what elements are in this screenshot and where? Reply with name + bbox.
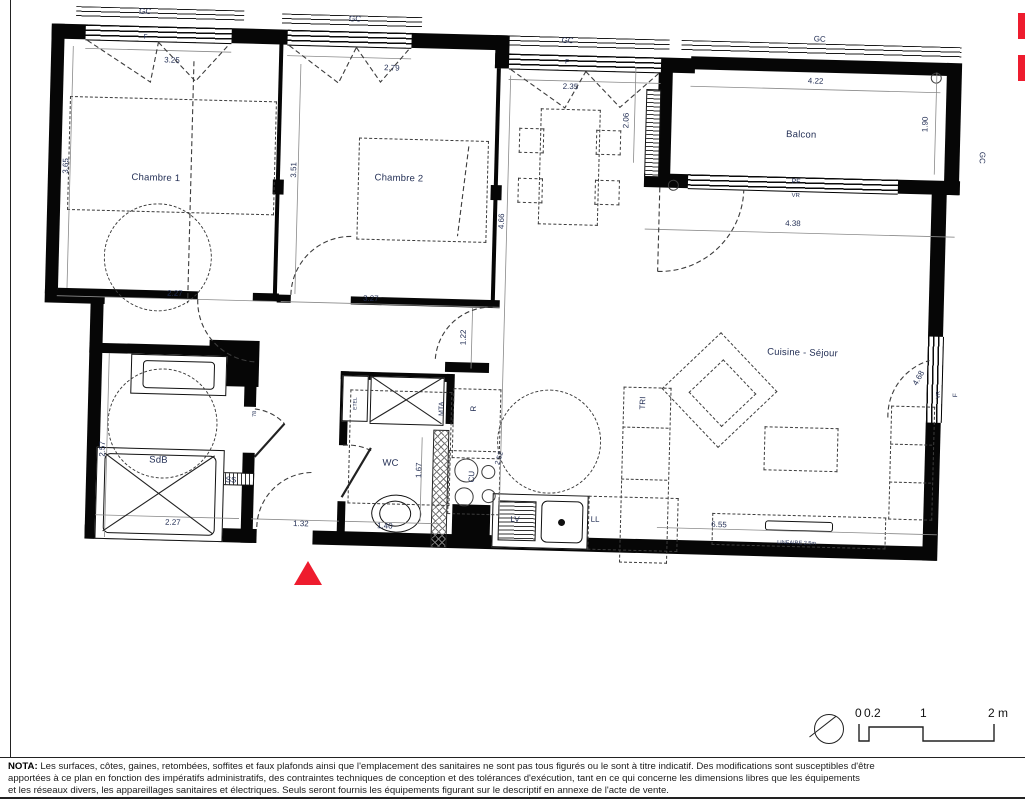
plan-label-vr: VR xyxy=(791,193,799,199)
plan-label-1-32: 1.32 xyxy=(293,520,309,528)
nota-line1: NOTA: Les surfaces, côtes, gaines, retom… xyxy=(8,761,1013,773)
plan-label-f: F xyxy=(565,60,569,67)
plan-label-3-51: 3.51 xyxy=(290,162,298,178)
plan-label-cuisine-s-jour: Cuisine - Séjour xyxy=(767,348,838,359)
plan-label-tri: TRI xyxy=(639,397,647,410)
nota-top-rule xyxy=(0,757,1025,758)
plan-label-2-35: 2.35 xyxy=(563,83,579,91)
plan-label-78: 78 xyxy=(253,411,259,417)
plan-label-chambre-2: Chambre 2 xyxy=(374,173,423,184)
red-tab-bottom xyxy=(1018,55,1025,81)
nota-block: NOTA: Les surfaces, côtes, gaines, retom… xyxy=(8,761,1013,798)
plan-label-lineaire-2-5m: LINEAIRE 2.5m xyxy=(777,541,816,548)
scale-bar: 0 0.2 1 2 m xyxy=(852,706,1017,750)
plan-label-sdb: SdB xyxy=(149,455,168,465)
plan-label-1-40: 1.40 xyxy=(377,522,393,530)
red-tab-top xyxy=(1018,13,1025,39)
entry-marker-triangle xyxy=(294,561,322,585)
plan-label-gc: GC xyxy=(139,8,151,16)
plan-label-f: F xyxy=(143,35,147,42)
plan-label-lv: LV xyxy=(510,516,519,524)
plan-label-balcon: Balcon xyxy=(786,130,816,140)
plan-label-f: F xyxy=(953,393,960,397)
scale-tick-02: 0.2 xyxy=(864,706,881,720)
plan-label-4-22: 4.22 xyxy=(808,77,824,85)
plan-label-ll: LL xyxy=(591,516,600,524)
scale-tick-2m: 2 m xyxy=(988,706,1008,720)
nota-line1-text: Les surfaces, côtes, gaines, retombées, … xyxy=(38,761,875,772)
plan-label-1-90: 1.90 xyxy=(921,116,929,132)
plan-label-cu: CU xyxy=(468,471,476,483)
plan-label-gc: GC xyxy=(978,152,986,164)
plan-label-vr: VR xyxy=(937,391,943,399)
plan-label-2-06: 2.06 xyxy=(622,113,630,129)
nota-line2: apportées à ce plan en fonction des impé… xyxy=(8,773,1013,785)
plan-linework xyxy=(38,0,977,572)
plan-label-gc: GC xyxy=(562,37,574,45)
plan-label-2-57: 2.57 xyxy=(99,441,107,457)
north-symbol xyxy=(810,712,842,744)
floor-plan: GCGCGCGCGCFF3.252.792.354.221.902.06Balc… xyxy=(38,0,977,572)
nota-title: NOTA: xyxy=(8,761,38,772)
floorplan-page: { "colors": { "accent_red": "#ee1c2e", "… xyxy=(0,0,1025,800)
plan-label-3-27: 3.27 xyxy=(363,295,379,303)
plan-label-gc: GC xyxy=(349,15,361,23)
plan-label-3-65: 3.65 xyxy=(62,158,70,174)
plan-label-3-25: 3.25 xyxy=(164,56,180,64)
plan-label-wc: WC xyxy=(382,459,398,469)
nota-line3: et les réseaux divers, les appareillages… xyxy=(8,785,1013,797)
plan-label-gc: GC xyxy=(814,35,826,43)
plan-label-mta: MTA xyxy=(438,402,445,416)
plan-label-pf: PF xyxy=(791,178,800,185)
scale-tick-1: 1 xyxy=(920,706,927,720)
plan-label-chambre-1: Chambre 1 xyxy=(131,173,180,184)
page-left-border xyxy=(10,0,11,758)
scale-tick-0: 0 xyxy=(855,706,862,720)
plan-label-2-79: 2.79 xyxy=(384,64,400,72)
plan-label-r: R xyxy=(470,406,478,412)
plan-label-2-27: 2.27 xyxy=(165,519,181,527)
plan-label-2-27: 2.27 xyxy=(167,290,183,298)
plan-label-1-22: 1.22 xyxy=(460,329,468,345)
plan-label-1-67: 1.67 xyxy=(415,462,423,478)
plan-label-4-38: 4.38 xyxy=(785,220,801,228)
plan-label-4-66: 4.66 xyxy=(498,213,506,229)
plan-label-6-55: 6.55 xyxy=(711,521,727,529)
plan-label-ss: SS xyxy=(226,476,237,484)
plan-label-etel: ETEL xyxy=(353,397,358,410)
